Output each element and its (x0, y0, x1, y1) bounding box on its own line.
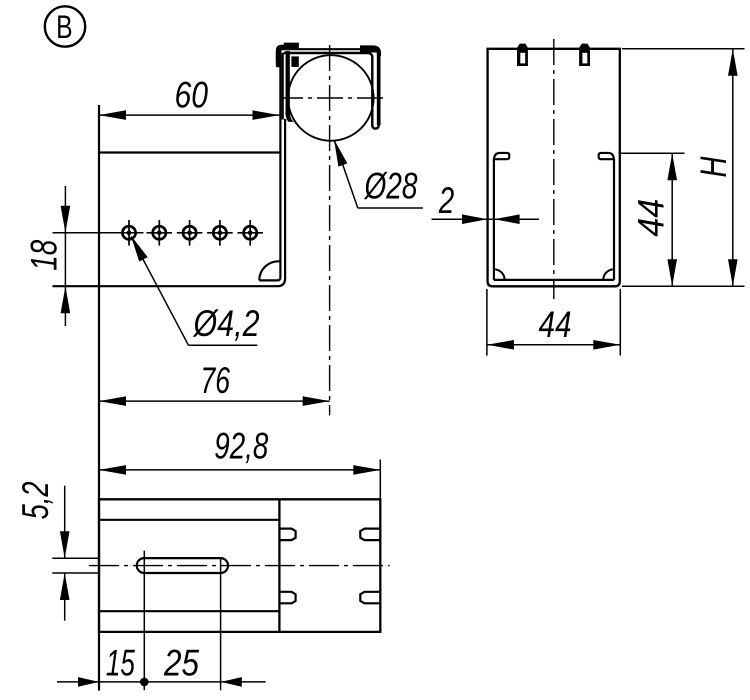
svg-text:Ø28: Ø28 (363, 166, 418, 207)
svg-text:H: H (693, 156, 734, 177)
svg-text:60: 60 (175, 75, 209, 116)
svg-text:15: 15 (106, 643, 135, 684)
svg-text:2: 2 (438, 179, 454, 221)
svg-text:44: 44 (631, 199, 672, 237)
svg-text:5,2: 5,2 (15, 481, 56, 519)
svg-text:76: 76 (201, 360, 231, 401)
svg-text:18: 18 (24, 239, 65, 270)
svg-text:92,8: 92,8 (214, 426, 268, 467)
svg-text:Ø4,2: Ø4,2 (192, 303, 260, 344)
svg-text:B: B (56, 10, 72, 46)
svg-text:25: 25 (163, 643, 199, 684)
svg-text:44: 44 (539, 304, 572, 345)
